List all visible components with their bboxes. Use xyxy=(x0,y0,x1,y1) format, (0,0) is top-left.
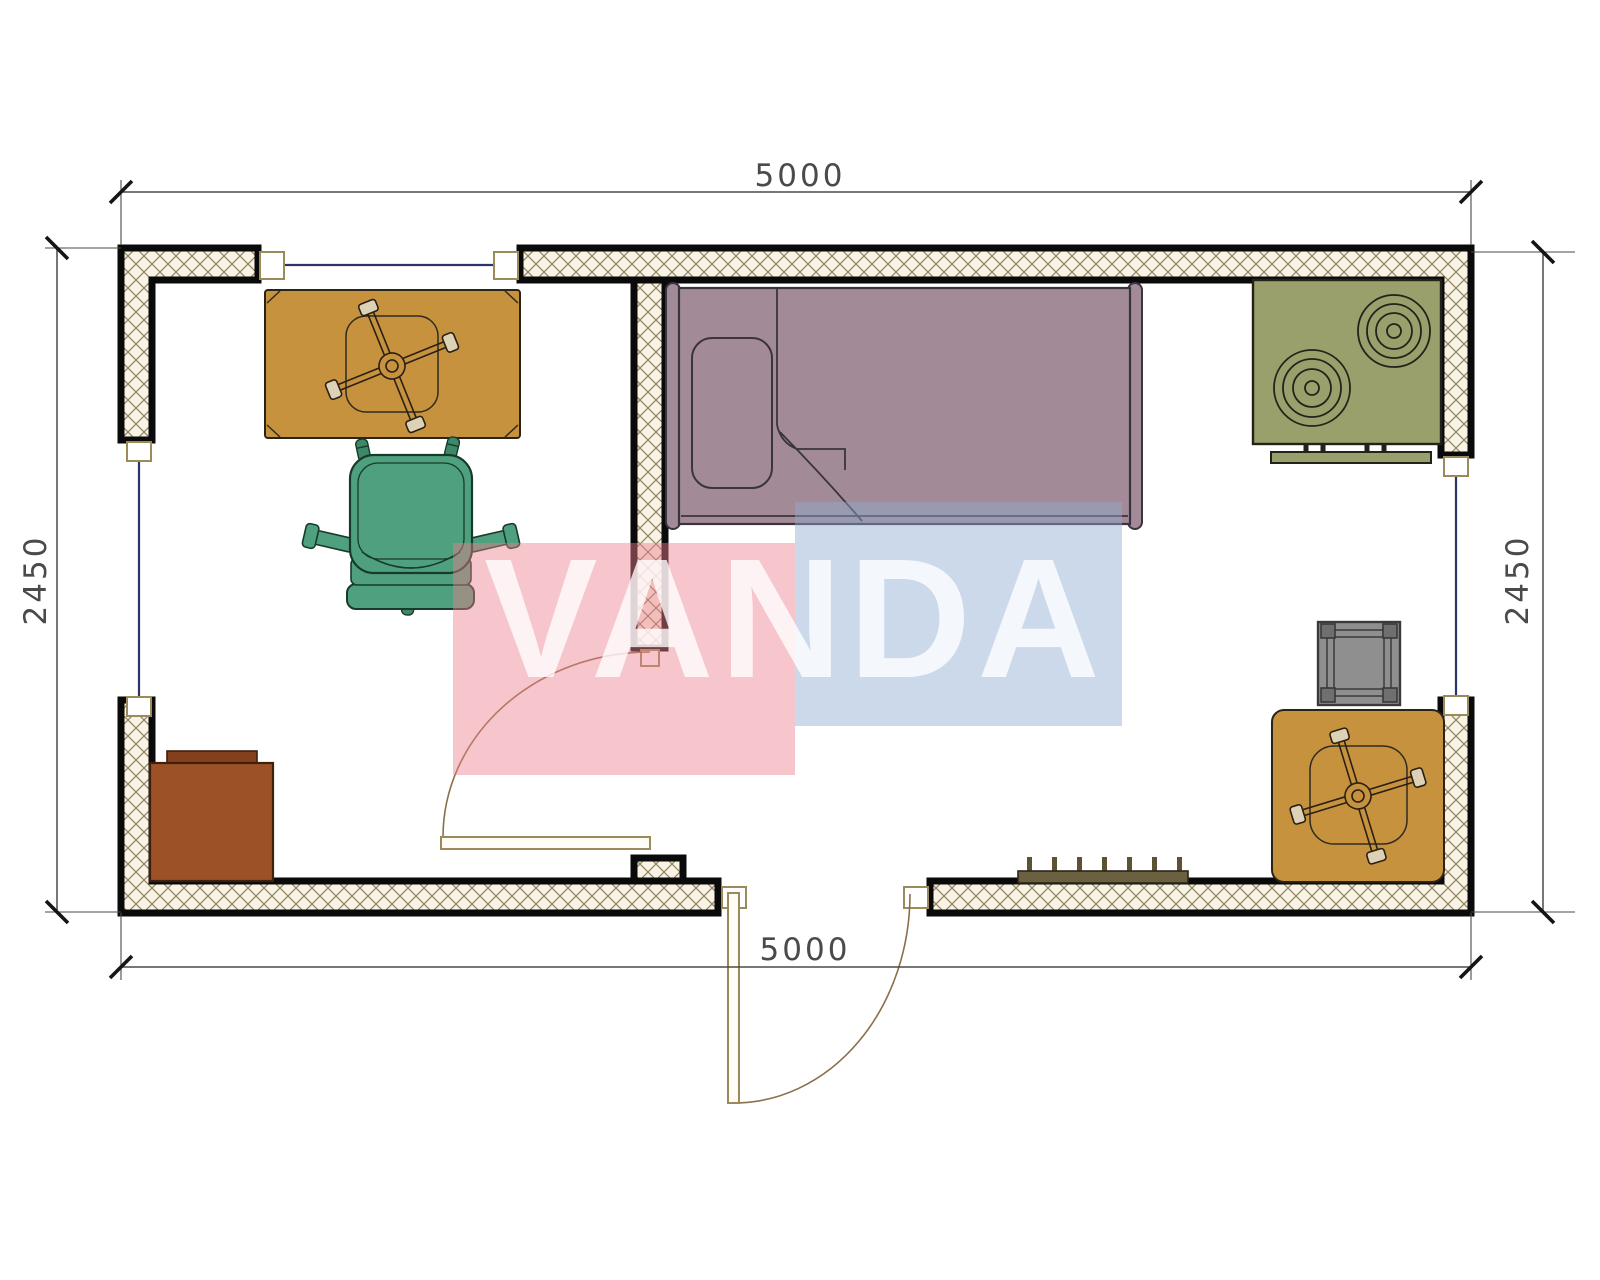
cabinet-body xyxy=(150,763,273,881)
dimension-bottom: 5000 xyxy=(110,913,1482,980)
watermark: VANDA xyxy=(453,502,1122,775)
radiator xyxy=(1018,857,1188,883)
stove-control-bar xyxy=(1271,452,1431,463)
stool xyxy=(1318,622,1400,705)
dimension-left-label: 2450 xyxy=(18,535,54,626)
window-right-frame-bottom xyxy=(1444,696,1468,715)
window-top-frame-right xyxy=(494,252,518,279)
table-top-left-surface xyxy=(265,290,520,438)
floor-plan-canvas: 5000 5000 2450 2450 VANDA xyxy=(0,0,1600,1280)
dimension-left: 2450 xyxy=(18,237,121,923)
cabinet xyxy=(150,751,273,881)
table-bottom-right xyxy=(1272,710,1444,882)
door-exterior-leaf xyxy=(728,893,739,1103)
dimension-right: 2450 xyxy=(1471,241,1575,923)
table-bottom-right-surface xyxy=(1272,710,1444,882)
door-exterior-jamb-right xyxy=(904,887,928,908)
wall-top-left-corner xyxy=(121,248,258,440)
wall-door-pilaster xyxy=(634,858,683,881)
window-top-frame-left xyxy=(260,252,284,279)
dimension-right-label: 2450 xyxy=(1500,535,1536,626)
window-right-frame-top xyxy=(1444,457,1468,476)
window-left-frame-bottom xyxy=(127,697,151,716)
chair-armrest-left xyxy=(302,523,357,558)
dimension-bottom-label: 5000 xyxy=(760,932,851,968)
stove xyxy=(1253,280,1441,463)
window-right xyxy=(1444,457,1468,715)
door-exterior xyxy=(722,887,928,1103)
door-exterior-swing-arc xyxy=(734,894,910,1103)
watermark-text: VANDA xyxy=(484,524,1106,714)
dimension-top-label: 5000 xyxy=(755,158,846,194)
dimension-top: 5000 xyxy=(110,158,1482,245)
window-left xyxy=(127,442,151,716)
window-top xyxy=(260,252,518,279)
radiator-bar xyxy=(1018,871,1188,883)
floor-plan-drawing: 5000 5000 2450 2450 VANDA xyxy=(0,0,1600,1280)
radiator-fins xyxy=(1027,857,1182,872)
door-interior-leaf xyxy=(441,837,650,849)
table-top-left xyxy=(265,276,520,456)
window-left-frame-top xyxy=(127,442,151,461)
bed xyxy=(666,283,1142,529)
